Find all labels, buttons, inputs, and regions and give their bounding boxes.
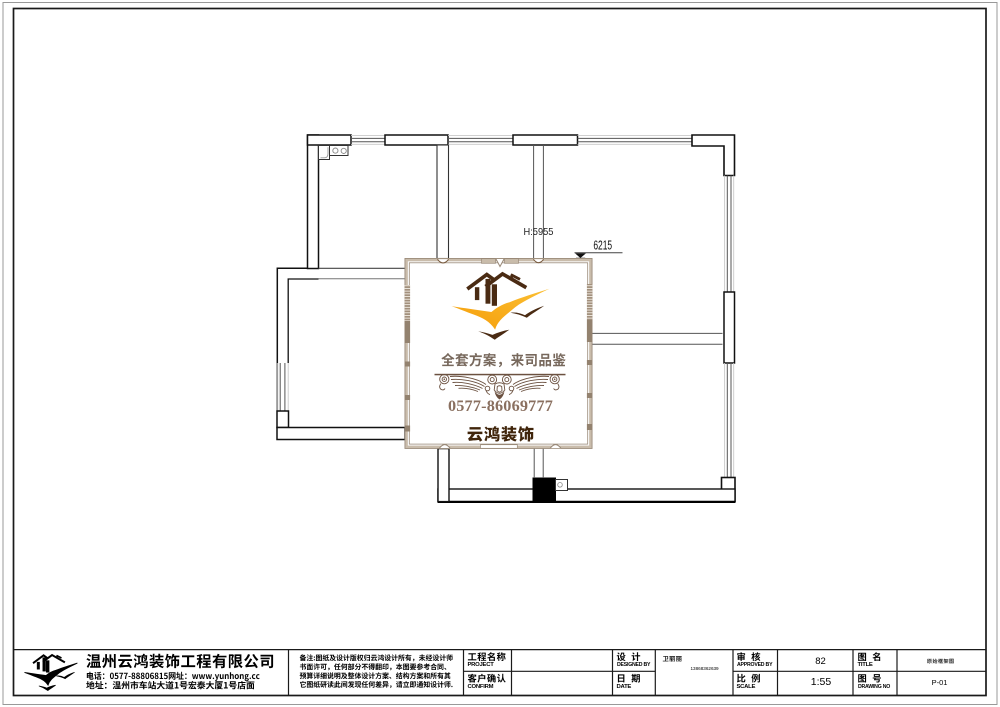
svg-text:H:5955: H:5955 [524, 227, 554, 238]
svg-text:0577-86069777: 0577-86069777 [448, 397, 553, 415]
svg-text:6215: 6215 [593, 239, 612, 253]
